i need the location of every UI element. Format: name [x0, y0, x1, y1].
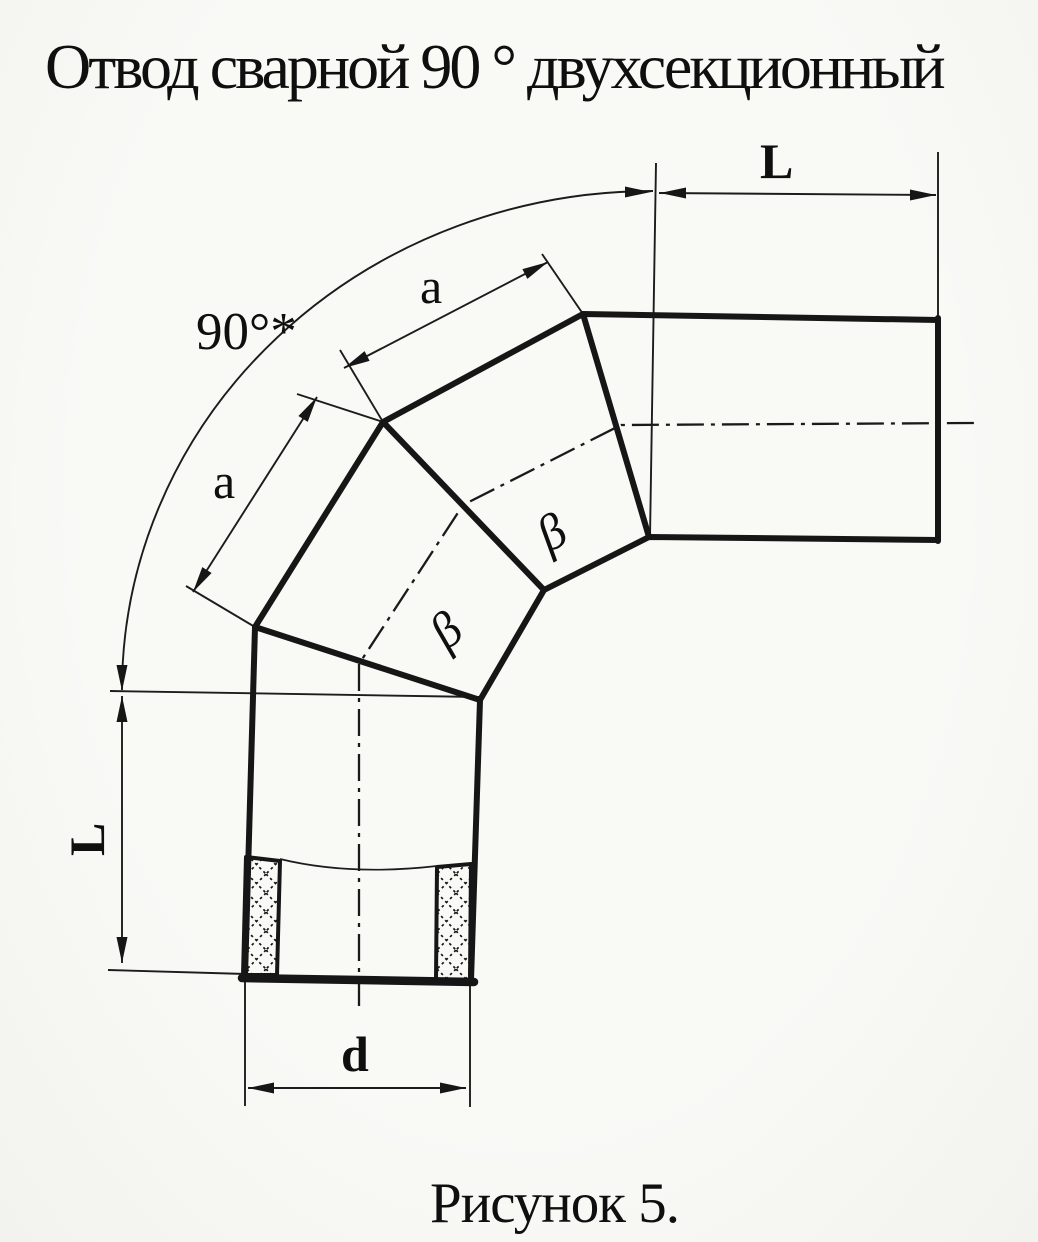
top-length-right-arrow: [910, 190, 936, 201]
angle-arc-bottom-arrow: [117, 665, 128, 691]
upper-section-right-extension: [542, 254, 583, 314]
left-length-bottom-extension: [108, 970, 246, 974]
upper-section-right-arrow: [522, 262, 548, 279]
elbow-body: [242, 314, 938, 982]
weld-seam-middle: [383, 422, 544, 590]
pipe-wall-sections: [243, 857, 471, 980]
lower-section-bottom-extension: [186, 586, 255, 627]
angle-arc-top-arrow: [625, 187, 651, 198]
top-length-left-extension: [650, 163, 656, 537]
left-length-top-extension: [110, 691, 479, 697]
bevel-angle-lower-label: β: [417, 600, 473, 660]
bevel-angle-upper-label: β: [526, 502, 577, 563]
figure-elbow-drawing: Отвод сварной 90 ° двухсекционный: [0, 0, 1038, 1242]
left-length-bottom-arrow: [117, 937, 128, 963]
top-length-dimension-line: [659, 193, 936, 195]
upper-section-left-arrow: [344, 351, 370, 368]
diameter-left-arrow: [248, 1083, 274, 1094]
diameter-right-arrow: [440, 1083, 466, 1094]
lower-section-bottom-arrow: [193, 567, 212, 592]
elbow-inner-outline: [471, 537, 938, 980]
elbow-outer-outline: [245, 314, 938, 977]
figure-caption: Рисунок 5.: [430, 1172, 679, 1235]
page-title: Отвод сварной 90 ° двухсекционный: [45, 31, 944, 102]
left-length-dimension-label: L: [59, 823, 115, 856]
left-length-top-arrow: [117, 696, 128, 722]
lower-section-top-arrow: [298, 397, 317, 422]
angle-arc: [122, 191, 653, 690]
top-length-dimension-label: L: [760, 133, 793, 189]
right-wall-cross-section: [436, 864, 471, 980]
lower-section-dimension-label: a: [213, 453, 235, 509]
angle-dimension-label: 90°*: [196, 303, 297, 361]
top-length-left-arrow: [660, 188, 686, 199]
upper-section-dimension-label: a: [420, 258, 442, 314]
diameter-dimension-label: d: [341, 1026, 369, 1082]
left-wall-cross-section: [243, 857, 280, 975]
